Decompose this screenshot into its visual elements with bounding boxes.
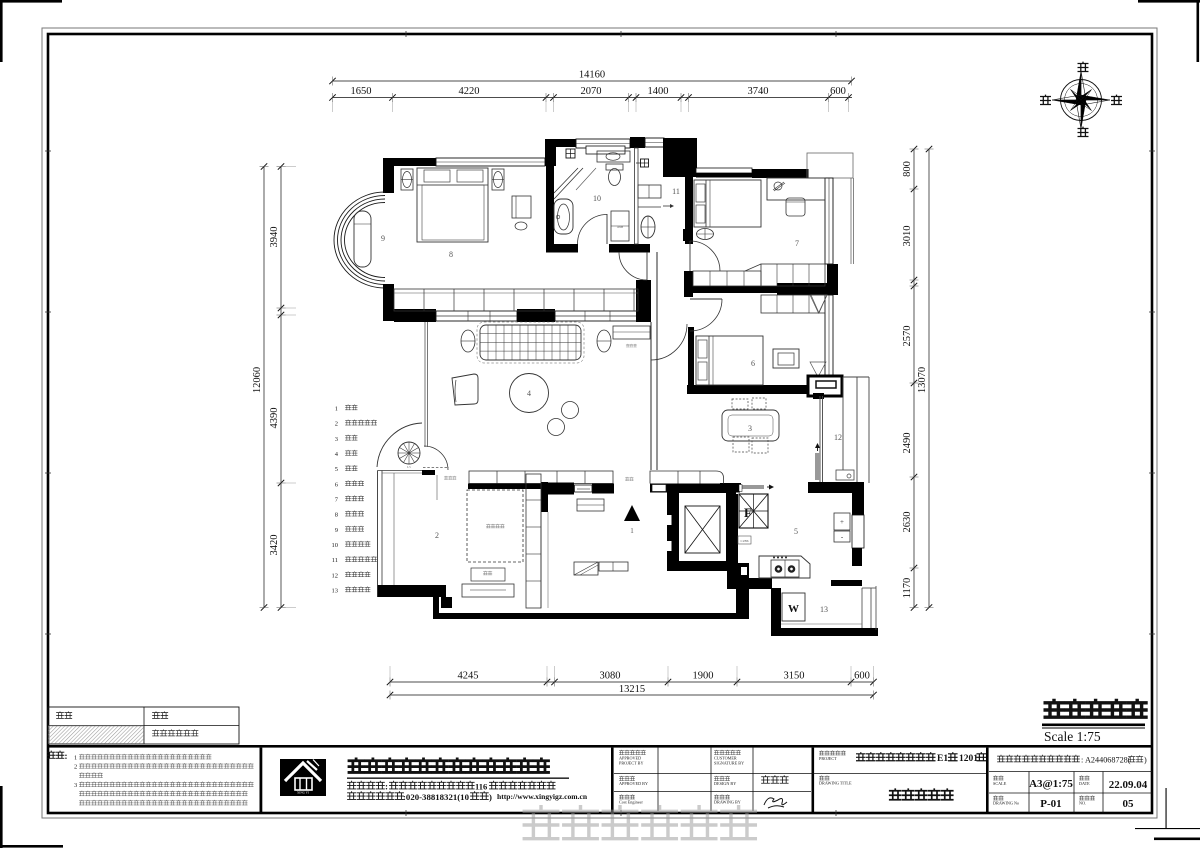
- svg-text::: :: [1081, 756, 1083, 765]
- svg-text:1900: 1900: [693, 671, 714, 682]
- svg-text:5: 5: [794, 527, 798, 536]
- svg-text:4390: 4390: [269, 408, 280, 429]
- svg-text:05: 05: [1123, 798, 1135, 810]
- svg-text:): ): [1144, 756, 1147, 765]
- svg-text:3: 3: [748, 424, 752, 433]
- svg-text:): ): [489, 792, 492, 802]
- svg-text:2490: 2490: [902, 433, 913, 454]
- svg-text:2070: 2070: [581, 86, 602, 97]
- svg-text:2630: 2630: [902, 512, 913, 533]
- svg-text:L5: L5: [407, 465, 411, 469]
- svg-text:2: 2: [74, 764, 77, 771]
- svg-text:116: 116: [475, 781, 487, 791]
- svg-text:5: 5: [335, 466, 338, 473]
- svg-text:Scale 1:75: Scale 1:75: [1044, 729, 1101, 744]
- svg-text:13: 13: [332, 588, 339, 595]
- svg-text::: :: [65, 751, 68, 761]
- svg-text:1400: 1400: [648, 86, 669, 97]
- svg-text:1: 1: [335, 406, 338, 413]
- svg-text:W: W: [788, 603, 799, 615]
- svg-text:6: 6: [335, 481, 339, 488]
- svg-text:3740: 3740: [748, 86, 769, 97]
- svg-text:600: 600: [854, 671, 870, 682]
- svg-text:4: 4: [335, 451, 339, 458]
- svg-text:9: 9: [381, 234, 385, 243]
- svg-text:1650: 1650: [351, 86, 372, 97]
- svg-text:10: 10: [332, 542, 339, 549]
- svg-text:14160: 14160: [579, 70, 605, 81]
- svg-text:3150: 3150: [784, 671, 805, 682]
- svg-text:12: 12: [332, 572, 339, 579]
- svg-text:-: -: [841, 533, 844, 541]
- svg-text:13070: 13070: [917, 367, 928, 393]
- svg-text:7: 7: [335, 497, 339, 504]
- svg-text:PROJECT: PROJECT: [819, 756, 837, 761]
- svg-text:4:08: 4:08: [617, 225, 623, 229]
- svg-text:NO.: NO.: [1079, 801, 1086, 806]
- svg-text:2570: 2570: [902, 326, 913, 347]
- svg-text:1: 1: [74, 755, 77, 762]
- svg-text:DRAWING No: DRAWING No: [993, 801, 1019, 806]
- svg-text:APPROVED BY: APPROVED BY: [619, 781, 648, 786]
- svg-text:11: 11: [332, 557, 338, 564]
- svg-text:11: 11: [672, 187, 680, 196]
- svg-text:4245: 4245: [458, 671, 479, 682]
- svg-text:8: 8: [449, 250, 453, 259]
- svg-text:PROJECT BY: PROJECT BY: [619, 761, 643, 766]
- svg-text:DATE: DATE: [1079, 781, 1090, 786]
- svg-text:12060: 12060: [252, 367, 263, 393]
- svg-text:SCALE: SCALE: [993, 781, 1007, 786]
- svg-text:1170: 1170: [902, 578, 913, 599]
- svg-text::020-38818321(10: :020-38818321(10: [403, 792, 470, 802]
- svg-text:XING YI: XING YI: [297, 791, 309, 795]
- svg-text:DESIGN BY: DESIGN BY: [714, 781, 736, 786]
- svg-text::: :: [385, 782, 388, 792]
- svg-text:SIGNATURE BY: SIGNATURE BY: [714, 761, 744, 766]
- svg-text:1: 1: [630, 527, 634, 535]
- svg-text:13215: 13215: [619, 684, 645, 695]
- svg-text:9: 9: [335, 527, 338, 534]
- svg-text:4: 4: [527, 389, 531, 398]
- svg-text:10: 10: [593, 194, 601, 203]
- svg-text:3420: 3420: [269, 535, 280, 556]
- svg-text:6: 6: [751, 359, 755, 368]
- svg-text:+: +: [840, 518, 844, 526]
- svg-text:F: F: [744, 505, 752, 520]
- svg-text:4220: 4220: [459, 86, 480, 97]
- svg-text:C2B6: C2B6: [741, 539, 749, 543]
- svg-text:8: 8: [335, 512, 338, 519]
- svg-text:12: 12: [834, 433, 842, 442]
- svg-text:E1: E1: [937, 754, 948, 764]
- svg-text:3940: 3940: [269, 227, 280, 248]
- svg-text:A244068728(: A244068728(: [1085, 756, 1131, 765]
- svg-text:7: 7: [795, 239, 799, 248]
- svg-text:3010: 3010: [902, 226, 913, 247]
- svg-text:http://www.xingyigz.com.cn: http://www.xingyigz.com.cn: [497, 792, 588, 801]
- svg-text:3: 3: [335, 436, 338, 443]
- svg-text:A3@1:75: A3@1:75: [1029, 778, 1073, 790]
- svg-text:800: 800: [902, 161, 913, 177]
- svg-text:3080: 3080: [600, 671, 621, 682]
- svg-text:P-01: P-01: [1040, 798, 1061, 810]
- svg-text:22.09.04: 22.09.04: [1109, 779, 1148, 791]
- svg-text:3: 3: [74, 782, 77, 789]
- svg-text:13: 13: [820, 605, 828, 614]
- svg-text:2: 2: [335, 421, 338, 428]
- svg-text:Cost Engineer: Cost Engineer: [619, 800, 643, 805]
- svg-text:1201: 1201: [959, 754, 978, 764]
- svg-text:DRAWING BY: DRAWING BY: [714, 800, 741, 805]
- svg-text:600: 600: [830, 86, 846, 97]
- svg-text:2: 2: [435, 531, 439, 540]
- svg-text:DRAWING TITLE: DRAWING TITLE: [819, 781, 852, 786]
